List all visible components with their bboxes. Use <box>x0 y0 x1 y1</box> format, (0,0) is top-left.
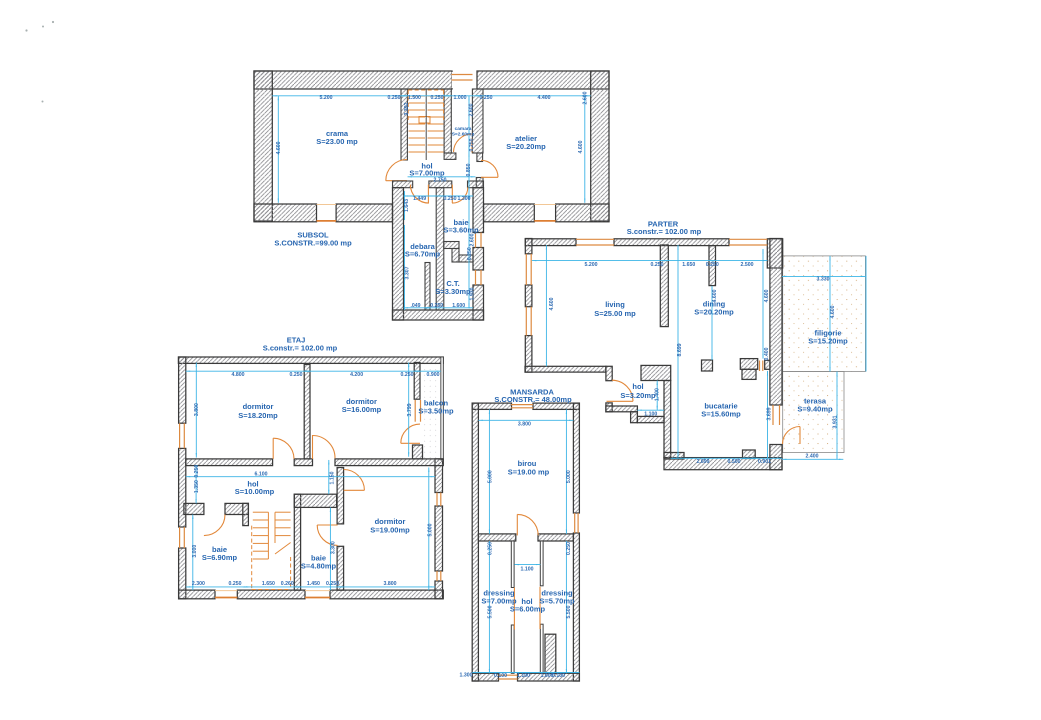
svg-text:5.500: 5.500 <box>566 605 572 618</box>
svg-text:0.250: 0.250 <box>290 372 303 378</box>
svg-text:0.250: 0.250 <box>229 581 242 587</box>
svg-text:0.250: 0.250 <box>444 196 457 202</box>
svg-text:2.750: 2.750 <box>434 177 447 183</box>
svg-text:S=3.60mp: S=3.60mp <box>443 226 479 235</box>
svg-text:8.699: 8.699 <box>677 343 683 356</box>
svg-text:S=19.00mp: S=19.00mp <box>370 526 410 535</box>
svg-text:4.600: 4.600 <box>578 140 584 153</box>
svg-text:1.350: 1.350 <box>194 480 200 493</box>
svg-text:0.250: 0.250 <box>706 262 719 268</box>
svg-text:S=20.20mp: S=20.20mp <box>694 308 734 317</box>
svg-text:S=18.20mp: S=18.20mp <box>238 411 278 420</box>
svg-text:4.600: 4.600 <box>764 289 770 302</box>
svg-text:3.800: 3.800 <box>194 403 200 416</box>
svg-text:4.600: 4.600 <box>276 141 282 154</box>
svg-text:0.250: 0.250 <box>566 542 572 555</box>
svg-text:0.500: 0.500 <box>728 459 741 465</box>
svg-text:1.643: 1.643 <box>404 199 410 212</box>
svg-text:S.constr.= 102.00 mp: S.constr.= 102.00 mp <box>627 227 702 236</box>
svg-text:1.150: 1.150 <box>330 471 336 484</box>
svg-text:3.699: 3.699 <box>767 407 773 420</box>
svg-text:2.600: 2.600 <box>470 233 476 246</box>
svg-text:5.000: 5.000 <box>566 470 572 483</box>
svg-text:.049: .049 <box>410 303 420 309</box>
svg-text:S=19.00 mp: S=19.00 mp <box>508 467 550 476</box>
svg-text:hol: hol <box>632 382 643 391</box>
svg-text:S=6.70mp: S=6.70mp <box>405 250 441 259</box>
svg-text:S=3.30mp: S=3.30mp <box>435 287 471 296</box>
svg-text:S=16.00mp: S=16.00mp <box>342 405 382 414</box>
svg-text:1.000: 1.000 <box>454 95 467 101</box>
svg-text:0.250: 0.250 <box>469 138 475 151</box>
svg-text:3.800: 3.800 <box>518 421 531 427</box>
svg-text:3.799: 3.799 <box>407 403 413 416</box>
svg-text:5.000: 5.000 <box>428 523 434 536</box>
svg-text:4.800: 4.800 <box>232 372 245 378</box>
svg-text:0.100: 0.100 <box>494 673 507 679</box>
svg-text:S=5.70mp: S=5.70mp <box>539 596 575 605</box>
svg-text:1.650: 1.650 <box>682 262 695 268</box>
svg-text:5.000: 5.000 <box>488 470 494 483</box>
svg-text:0.250: 0.250 <box>431 95 444 101</box>
svg-text:1.500: 1.500 <box>408 95 421 101</box>
svg-text:0.100: 0.100 <box>552 673 565 679</box>
svg-text:3.000: 3.000 <box>192 545 198 558</box>
svg-text:S=4.80mp: S=4.80mp <box>301 562 337 571</box>
svg-text:0.250: 0.250 <box>326 581 339 587</box>
svg-text:1.300: 1.300 <box>460 673 473 679</box>
svg-text:1.100: 1.100 <box>644 412 657 418</box>
svg-text:1.100: 1.100 <box>517 673 530 679</box>
svg-text:1.600: 1.600 <box>452 303 465 309</box>
svg-text:living: living <box>605 300 625 309</box>
svg-text:S=25.00 mp: S=25.00 mp <box>594 309 636 318</box>
svg-text:3.392: 3.392 <box>404 102 410 115</box>
svg-text:1.100: 1.100 <box>521 567 534 573</box>
svg-text:2.300: 2.300 <box>192 581 205 587</box>
svg-text:4.200: 4.200 <box>350 372 363 378</box>
svg-text:S=23.00 mp: S=23.00 mp <box>316 137 358 146</box>
svg-text:3.307: 3.307 <box>405 266 411 279</box>
svg-text:2.400: 2.400 <box>806 454 819 460</box>
svg-text:S.constr.= 102.00 mp: S.constr.= 102.00 mp <box>263 344 338 353</box>
svg-text:0.250: 0.250 <box>388 95 401 101</box>
svg-text:5.200: 5.200 <box>320 95 333 101</box>
svg-text:1.450: 1.450 <box>307 581 320 587</box>
svg-text:S=7.00mp: S=7.00mp <box>409 169 445 178</box>
svg-text:6.100: 6.100 <box>255 472 268 478</box>
svg-text:dormitor: dormitor <box>243 402 274 411</box>
svg-text:3.300: 3.300 <box>331 541 337 554</box>
svg-text:3.800: 3.800 <box>384 581 397 587</box>
svg-text:5.500: 5.500 <box>488 605 494 618</box>
svg-text:camara: camara <box>455 126 472 132</box>
svg-text:0.900: 0.900 <box>427 372 440 378</box>
svg-text:0.901: 0.901 <box>758 459 771 465</box>
svg-text:0.250: 0.250 <box>488 542 494 555</box>
svg-text:2.600: 2.600 <box>469 103 475 116</box>
svg-text:0.260: 0.260 <box>281 581 294 587</box>
svg-text:3.931: 3.931 <box>833 415 839 428</box>
svg-text:S=3.20mp: S=3.20mp <box>620 391 656 400</box>
svg-text:2.699: 2.699 <box>697 459 710 465</box>
svg-text:0.250: 0.250 <box>480 95 493 101</box>
svg-text:1.650: 1.650 <box>262 581 275 587</box>
svg-text:2.600: 2.600 <box>583 91 589 104</box>
svg-text:S=3.50mp: S=3.50mp <box>418 406 454 415</box>
svg-text:S.CONSTR.= 48.00mp: S.CONSTR.= 48.00mp <box>494 395 572 404</box>
svg-text:0.400: 0.400 <box>764 347 770 360</box>
svg-text:0.250: 0.250 <box>430 303 443 309</box>
svg-text:4.600: 4.600 <box>549 297 555 310</box>
svg-text:4.600: 4.600 <box>830 305 836 318</box>
svg-text:S=20.20mp: S=20.20mp <box>506 142 546 151</box>
svg-text:S=10.00mp: S=10.00mp <box>235 487 275 496</box>
svg-text:5.200: 5.200 <box>585 262 598 268</box>
svg-text:2.500: 2.500 <box>741 262 754 268</box>
svg-text:S.CONSTR.=99.00 mp: S.CONSTR.=99.00 mp <box>274 238 352 247</box>
svg-text:4.400: 4.400 <box>538 95 551 101</box>
svg-text:S=6.90mp: S=6.90mp <box>202 553 238 562</box>
svg-text:0.250: 0.250 <box>651 262 664 268</box>
svg-text:1.449: 1.449 <box>413 196 426 202</box>
svg-text:S=6.00mp: S=6.00mp <box>510 605 546 614</box>
svg-text:S=15.20mp: S=15.20mp <box>808 337 848 346</box>
svg-text:0.250: 0.250 <box>467 247 473 260</box>
svg-text:S=9.40mp: S=9.40mp <box>797 405 833 414</box>
svg-text:S=2.60mp: S=2.60mp <box>452 132 475 138</box>
svg-text:0.850: 0.850 <box>466 163 472 176</box>
svg-text:S=15.60mp: S=15.60mp <box>701 410 741 419</box>
svg-text:0.250: 0.250 <box>194 465 200 478</box>
svg-text:1.300: 1.300 <box>458 196 471 202</box>
svg-text:3.330: 3.330 <box>817 277 830 283</box>
svg-text:0.250: 0.250 <box>401 372 414 378</box>
